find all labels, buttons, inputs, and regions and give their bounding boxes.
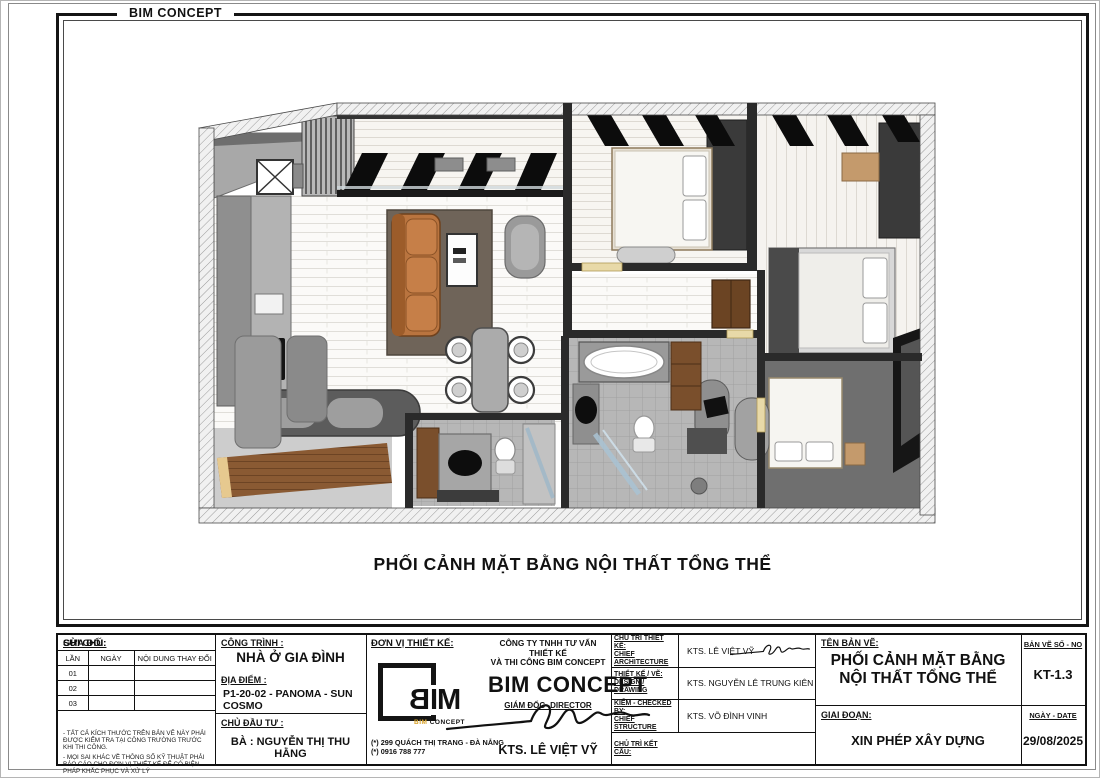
revision-row-no: 02 — [58, 681, 88, 696]
revision-cell — [88, 681, 134, 696]
role-label: KIỂM - CHECKED BY: — [614, 700, 675, 716]
sofa — [392, 214, 440, 336]
client-label: CHỦ ĐẦU TƯ : — [221, 718, 283, 728]
role-signature — [729, 637, 811, 665]
role-row: THIẾT KẾ / VẼ:DESIGN / DRAWING KTS. NGUY… — [611, 668, 815, 701]
role-row: KIỂM - CHECKED BY:CHIEF STRUCTURE KTS. V… — [611, 700, 815, 733]
sheet-name: PHỐI CẢNH MẶT BẰNG NỘI THẤT TỔNG THỂ — [815, 652, 1021, 688]
revision-col-header: NGÀY — [88, 651, 134, 666]
divider — [815, 705, 1021, 706]
role-label: CHỦ TRÌ KẾT CẤU: — [614, 741, 676, 757]
role-label: CHIEF ARCHITECTURE — [614, 651, 675, 667]
role-label: CHỦ TRÌ THIẾT KẾ: — [614, 635, 675, 651]
role-label: DESIGN / DRAWING — [614, 679, 675, 695]
note-line: - TẤT CẢ KÍCH THƯỚC TRÊN BẢN VẼ NÀY PHẢI… — [63, 730, 211, 752]
notes-label: GHI CHÚ: — [63, 638, 106, 649]
role-name: KTS. VÕ ĐÌNH VINH — [687, 700, 767, 732]
designer-block: ĐƠN VỊ THIẾT KẾ: BIM BIM CONCEPT (*) 299… — [366, 635, 611, 764]
role-row: CHỦ TRÌ KẾT CẤU: — [611, 733, 815, 766]
revision-cell — [88, 696, 134, 711]
notes-text: - TẤT CẢ KÍCH THƯỚC TRÊN BẢN VẼ NÀY PHẢI… — [63, 730, 211, 777]
sheet-name-label: TÊN BẢN VẼ: — [821, 638, 879, 648]
company-name-line2: VÀ THI CÔNG BIM CONCEPT — [488, 658, 608, 668]
designer-label: ĐƠN VỊ THIẾT KẾ: — [371, 638, 454, 649]
revision-cell — [134, 666, 215, 681]
coffee-table — [447, 234, 477, 286]
company-name-line1: CÔNG TY TNHH TƯ VẤN THIẾT KẾ — [488, 639, 608, 658]
floor-plan-rendering — [187, 98, 937, 530]
note-line: - MỌI SAI KHÁC VỀ THÔNG SỐ KỸ THUẬT PHẢI… — [63, 754, 211, 776]
revision-cell — [134, 696, 215, 711]
sheet-number-block: BẢN VẼ SỐ - NO KT-1.3 NGÀY - DATE 29/08/… — [1021, 635, 1085, 764]
role-label: THIẾT KẾ / VẼ: — [614, 671, 675, 679]
project-label: CÔNG TRÌNH : — [221, 638, 284, 648]
revision-row-no: 03 — [58, 696, 88, 711]
drawing-frame: BIM CONCEPT — [56, 13, 1089, 627]
sheet-number: KT-1.3 — [1021, 667, 1085, 682]
sheet-name-block: TÊN BẢN VẼ: PHỐI CẢNH MẶT BẰNG NỘI THẤT … — [815, 635, 1021, 764]
designer-phone: (*) 0916 788 777 — [371, 747, 504, 756]
stage-value: XIN PHÉP XÂY DỰNG — [815, 733, 1021, 748]
sheet-date: 29/08/2025 — [1021, 734, 1085, 748]
revision-block: SỬA ĐỔI: LẦN NGÀY NỘI DUNG THAY ĐỔI 01 0… — [58, 635, 215, 764]
divider — [1021, 705, 1085, 706]
drawing-title: PHỐI CẢNH MẶT BẰNG NỘI THẤT TỔNG THỂ — [59, 554, 1086, 575]
stage-label: GIAI ĐOẠN: — [821, 710, 872, 720]
small-bathroom — [417, 424, 555, 504]
company-brand: BIM CONCEPT — [488, 672, 608, 698]
drawing-sheet: BIM CONCEPT — [0, 0, 1100, 778]
sheet-header-brand: BIM CONCEPT — [117, 6, 234, 20]
role-row: CHỦ TRÌ THIẾT KẾ:CHIEF ARCHITECTURE KTS.… — [611, 635, 815, 668]
project-block: CÔNG TRÌNH : NHÀ Ở GIA ĐÌNH ĐỊA ĐIỂM : P… — [215, 635, 366, 764]
location-label: ĐỊA ĐIỂM : — [221, 675, 267, 685]
role-name: KTS. NGUYỄN LÊ TRUNG KIÊN — [687, 668, 813, 700]
sheet-number-label: BẢN VẼ SỐ - NO — [1021, 640, 1085, 649]
divider — [215, 713, 366, 714]
revision-col-header: NỘI DUNG THAY ĐỔI — [134, 651, 215, 666]
project-client: BÀ : NGUYỄN THỊ THU HẰNG — [215, 736, 366, 760]
roles-block: CHỦ TRÌ THIẾT KẾ:CHIEF ARCHITECTURE KTS.… — [611, 635, 815, 764]
revision-row-no: 01 — [58, 666, 88, 681]
project-name: NHÀ Ở GIA ĐÌNH — [215, 650, 366, 665]
title-block: SỬA ĐỔI: LẦN NGÀY NỘI DUNG THAY ĐỔI 01 0… — [56, 633, 1087, 766]
revision-table: LẦN NGÀY NỘI DUNG THAY ĐỔI 01 02 03 — [58, 650, 215, 711]
date-label: NGÀY - DATE — [1021, 711, 1085, 720]
director-name: KTS. LÊ VIỆT VỸ — [488, 743, 608, 757]
revision-cell — [134, 681, 215, 696]
revision-col-header: LẦN — [58, 651, 88, 666]
revision-cell — [88, 666, 134, 681]
role-label: CHIEF STRUCTURE — [614, 716, 675, 732]
project-location: P1-20-02 - PANOMA - SUN COSMO — [223, 688, 358, 712]
